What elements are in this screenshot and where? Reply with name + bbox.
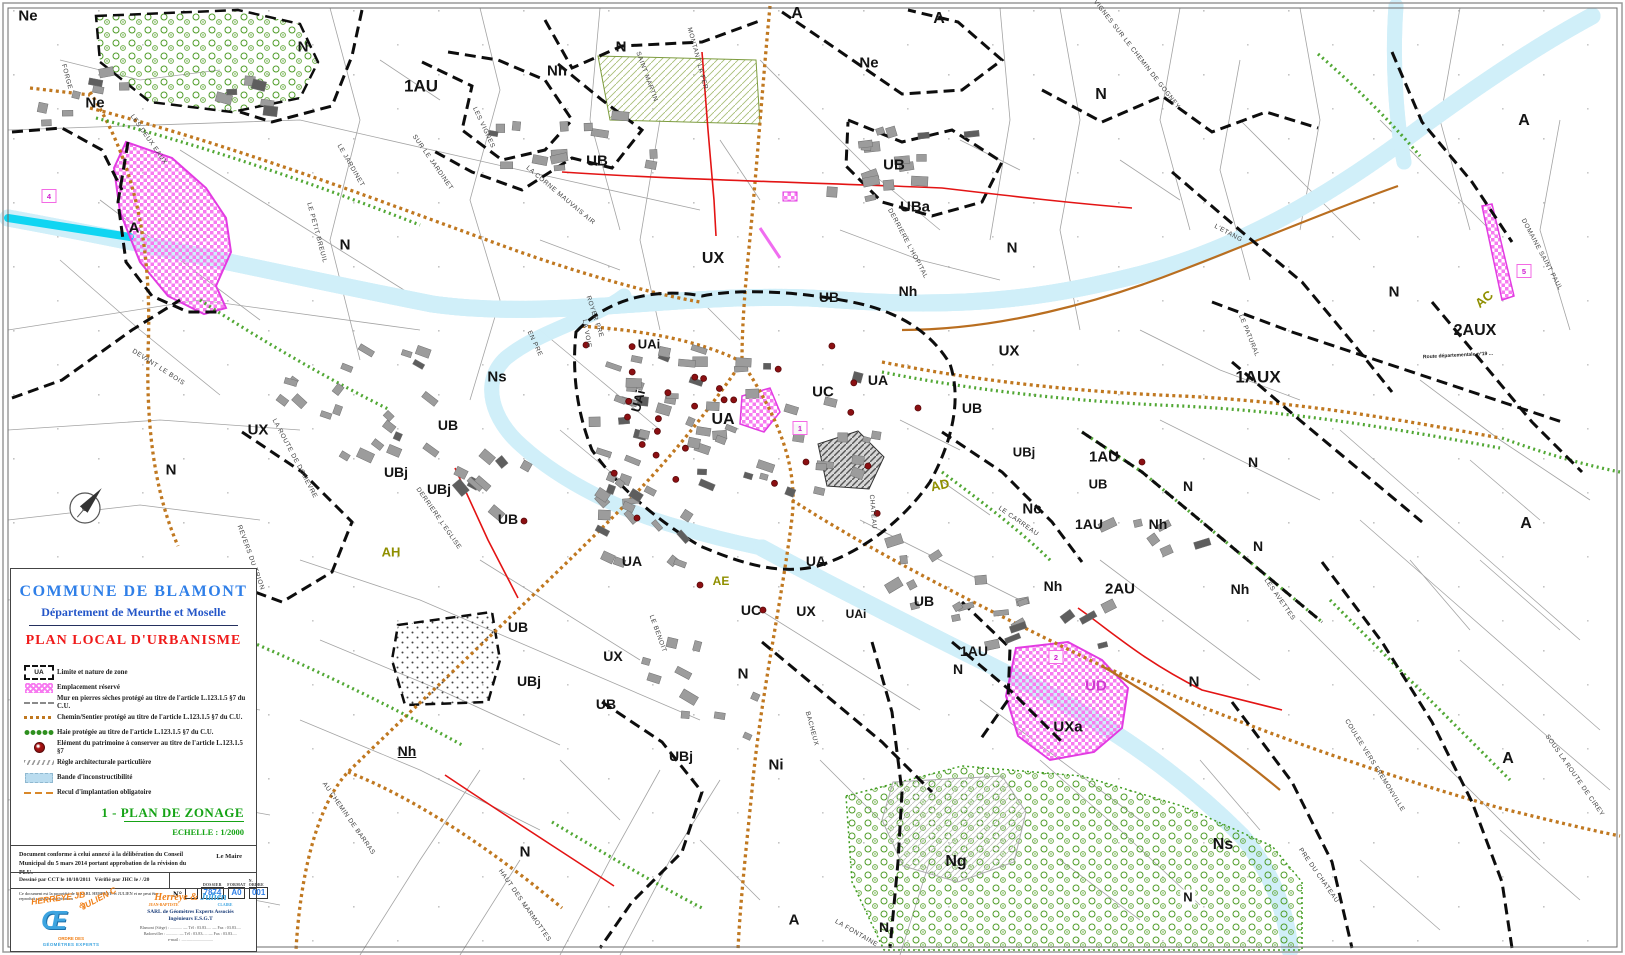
title-legend-panel: COMMUNE DE BLAMONT Département de Meurth… <box>10 568 257 952</box>
approval-text: Document conforme à celui annexé à la dé… <box>19 851 189 878</box>
divider <box>169 872 170 889</box>
legend-symbol <box>21 702 57 704</box>
pink-hatch-icon <box>25 683 53 693</box>
legend-symbol: UA <box>21 665 57 680</box>
divider <box>11 872 256 873</box>
legend-item-label: Elément du patrimoine à conserver au tit… <box>57 740 250 754</box>
legend-symbol <box>21 742 57 753</box>
legend-symbol <box>21 773 57 783</box>
divider <box>11 845 256 846</box>
divider <box>124 821 244 822</box>
company-firstnames: JEAN-BAPTISTE CLAIRE <box>129 903 252 907</box>
scale-label: ECHELLE : 1/2000 <box>172 827 244 837</box>
company-name: Herreye & Julien <box>129 892 252 903</box>
logo-subtitle-1: ORDRE DES <box>15 936 127 941</box>
ordre-caption: N. ORDRE <box>249 879 269 887</box>
legend-item-label: Limite et nature de zone <box>57 669 127 676</box>
legend-symbol <box>21 792 57 794</box>
setback-line-icon <box>24 792 54 794</box>
plu-map-sheet: NeNeN1AUNhNANeANAUBUBUBaUXNNhUBNANsUAiUA… <box>0 0 1625 955</box>
legend-item-label: Règle architecturale particulière <box>57 759 151 766</box>
legend-item-label: Bande d'inconstructibilité <box>57 774 132 781</box>
legend-item-label: Mur en pierres sèches protégé au titre d… <box>57 695 250 709</box>
zone-limit-icon: UA <box>24 665 54 680</box>
legend-symbol <box>21 760 57 765</box>
company-block: Herreye & Julien JEAN-BAPTISTE CLAIRE SA… <box>129 891 252 949</box>
company-address: Blamont (Siège) : ............ — Tél : 0… <box>129 925 252 943</box>
path-line-icon <box>24 716 54 719</box>
commune-title: COMMUNE DE BLAMONT <box>11 583 256 601</box>
legend-item: Recul d'implantation obligatoire <box>21 785 250 800</box>
le-maire-label: Le Maire <box>216 853 242 860</box>
company-name-2: Julien <box>200 892 226 903</box>
legend-item: Règle architecturale particulière <box>21 755 250 770</box>
legend-item: Bande d'inconstructibilité <box>21 770 250 785</box>
heritage-dot-icon <box>34 742 45 753</box>
departement-subtitle: Département de Meurthe et Moselle <box>11 605 256 620</box>
legend-symbol <box>21 716 57 719</box>
legend-item: Mur en pierres sèches protégé au titre d… <box>21 695 250 710</box>
legend-item: Haie protégée au titre de l'article L.12… <box>21 725 250 740</box>
legend-item-label: Haie protégée au titre de l'article L.12… <box>57 729 213 736</box>
legend-symbol <box>21 729 57 736</box>
legend-symbol <box>21 683 57 693</box>
divider <box>11 888 256 889</box>
legend-item: Emplacement réservé <box>21 680 250 695</box>
company-name-1: Herreye <box>154 892 187 903</box>
divider <box>29 625 238 626</box>
logo-subtitle-2: GÉOMÈTRES EXPERTS <box>15 942 127 947</box>
legend-item-label: Chemin/Sentier protégé au titre de l'art… <box>57 714 242 721</box>
drawn-by: Dessiné par CCT le 10/10/2011 <box>19 877 91 883</box>
verified-by: Vérifié par JHC le / /20 <box>95 877 150 883</box>
surveyor-logo: HERREYE JB & JULIEN C Œ ORDRE DES GÉOMÈT… <box>15 891 127 949</box>
wall-line-icon <box>24 702 54 704</box>
zonage-title: 1 - PLAN DE ZONAGE <box>101 805 244 821</box>
legend-item-label: Recul d'implantation obligatoire <box>57 789 151 796</box>
legend-item: UA Limite et nature de zone <box>21 665 250 680</box>
company-descr: SARL de Géomètres Experts Associés Ingén… <box>129 909 252 923</box>
plan-title: PLAN LOCAL D'URBANISME <box>11 633 256 649</box>
legend-item: Chemin/Sentier protégé au titre de l'art… <box>21 710 250 725</box>
legend-item-label: Emplacement réservé <box>57 684 120 691</box>
geometre-logo-icon: Œ <box>41 905 67 936</box>
legend: UA Limite et nature de zone Emplacement … <box>21 665 250 800</box>
legend-item: Elément du patrimoine à conserver au tit… <box>21 740 250 755</box>
arch-rule-icon <box>24 760 54 765</box>
drawn-verified-line: Dessiné par CCT le 10/10/2011 Vérifié pa… <box>19 877 165 883</box>
hedge-line-icon <box>24 729 54 736</box>
blue-band-icon <box>25 773 53 783</box>
